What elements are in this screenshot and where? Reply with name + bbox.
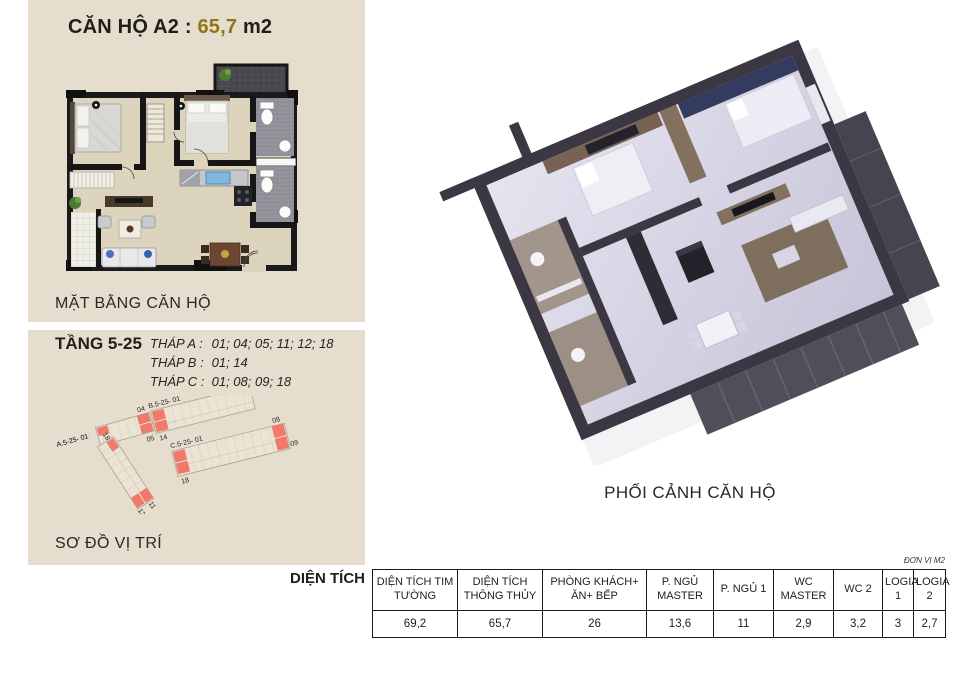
- apartment-area-value: 65,7: [197, 16, 237, 38]
- tower-c-name: THÁP C :: [150, 374, 208, 389]
- unit-a-05: 05: [146, 435, 156, 444]
- col-thong-thuy: DIỆN TÍCH THÔNG THỦY: [458, 570, 543, 611]
- wall-fin-top: [509, 122, 532, 159]
- apartment-title: CĂN HỘ A2 : 65,7 m2: [68, 16, 272, 39]
- apartment-title-suffix: m2: [237, 16, 272, 38]
- floors-range-label: TẦNG 5-25: [55, 334, 142, 354]
- perspective-3d-rendering: [428, 40, 943, 465]
- unit-c-09: 09: [290, 439, 299, 448]
- val-wc-master: 2,9: [774, 611, 834, 638]
- unit-c-08: 08: [272, 416, 281, 425]
- col-logia-1: LOGIA 1: [883, 570, 914, 611]
- val-tim-tuong: 69,2: [373, 611, 458, 638]
- tower-b-row: THÁP B : 01; 14: [150, 355, 248, 370]
- floorplan-2d-diagram: [66, 62, 298, 276]
- val-logia-2: 2,7: [914, 611, 946, 638]
- site-location-diagram: A.5-25- 01 04 05 18 11 12 B.5-25- 01 14: [48, 396, 312, 514]
- col-logia-2: LOGIA 2: [914, 570, 946, 611]
- perspective-caption: PHỐI CẢNH CĂN HỘ: [560, 483, 820, 503]
- brochure-page: CĂN HỘ A2 : 65,7 m2: [0, 0, 960, 678]
- bathroom-divider: [256, 158, 296, 166]
- val-thong-thuy: 65,7: [458, 611, 543, 638]
- unit-b-14: 14: [159, 434, 168, 443]
- unit-c-18: 18: [181, 477, 190, 486]
- col-tim-tuong: DIỆN TÍCH TIM TƯỜNG: [373, 570, 458, 611]
- area-table-header-row: DIỆN TÍCH TIM TƯỜNG DIỆN TÍCH THÔNG THỦY…: [373, 570, 946, 611]
- col-wc-2: WC 2: [834, 570, 883, 611]
- wall-fin-left: [439, 178, 476, 201]
- tower-a-row: THÁP A : 01; 04; 05; 11; 12; 18: [150, 336, 334, 351]
- tower-c-row: THÁP C : 01; 08; 09; 18: [150, 374, 291, 389]
- unit-a-04: 04: [136, 405, 146, 414]
- tower-a-name: THÁP A :: [150, 336, 208, 351]
- col-ngu-1: P. NGỦ 1: [714, 570, 774, 611]
- apartment-title-prefix: CĂN HỘ A2 :: [68, 16, 197, 38]
- tower-b-units: 01; 14: [212, 355, 248, 370]
- area-table-label: DIỆN TÍCH: [270, 570, 365, 587]
- tower-a-units: 01; 04; 05; 11; 12; 18: [212, 336, 334, 351]
- logia-left: [71, 212, 96, 267]
- unit-note: ĐƠN VỊ M2: [845, 556, 945, 565]
- tower-b-name: THÁP B :: [150, 355, 208, 370]
- plant-leaf: [225, 69, 231, 75]
- tower-c-units: 01; 08; 09; 18: [212, 374, 292, 389]
- val-ngu-master: 13,6: [647, 611, 714, 638]
- building-a-label: A.5-25- 01: [56, 433, 89, 449]
- col-wc-master: WC MASTER: [774, 570, 834, 611]
- val-ngu-1: 11: [714, 611, 774, 638]
- val-wc-2: 3,2: [834, 611, 883, 638]
- area-table-value-row: 69,2 65,7 26 13,6 11 2,9 3,2 3 2,7: [373, 611, 946, 638]
- val-phong-khach: 26: [543, 611, 647, 638]
- val-logia-1: 3: [883, 611, 914, 638]
- col-phong-khach: PHÒNG KHÁCH+ ĂN+ BẾP: [543, 570, 647, 611]
- col-ngu-master: P. NGỦ MASTER: [647, 570, 714, 611]
- sitemap-caption: SƠ ĐỒ VỊ TRÍ: [55, 535, 162, 553]
- entrance-gap: [242, 264, 266, 272]
- floorplan-caption: MẶT BẰNG CĂN HỘ: [55, 295, 211, 313]
- area-table: DIỆN TÍCH TIM TƯỜNG DIỆN TÍCH THÔNG THỦY…: [372, 569, 946, 638]
